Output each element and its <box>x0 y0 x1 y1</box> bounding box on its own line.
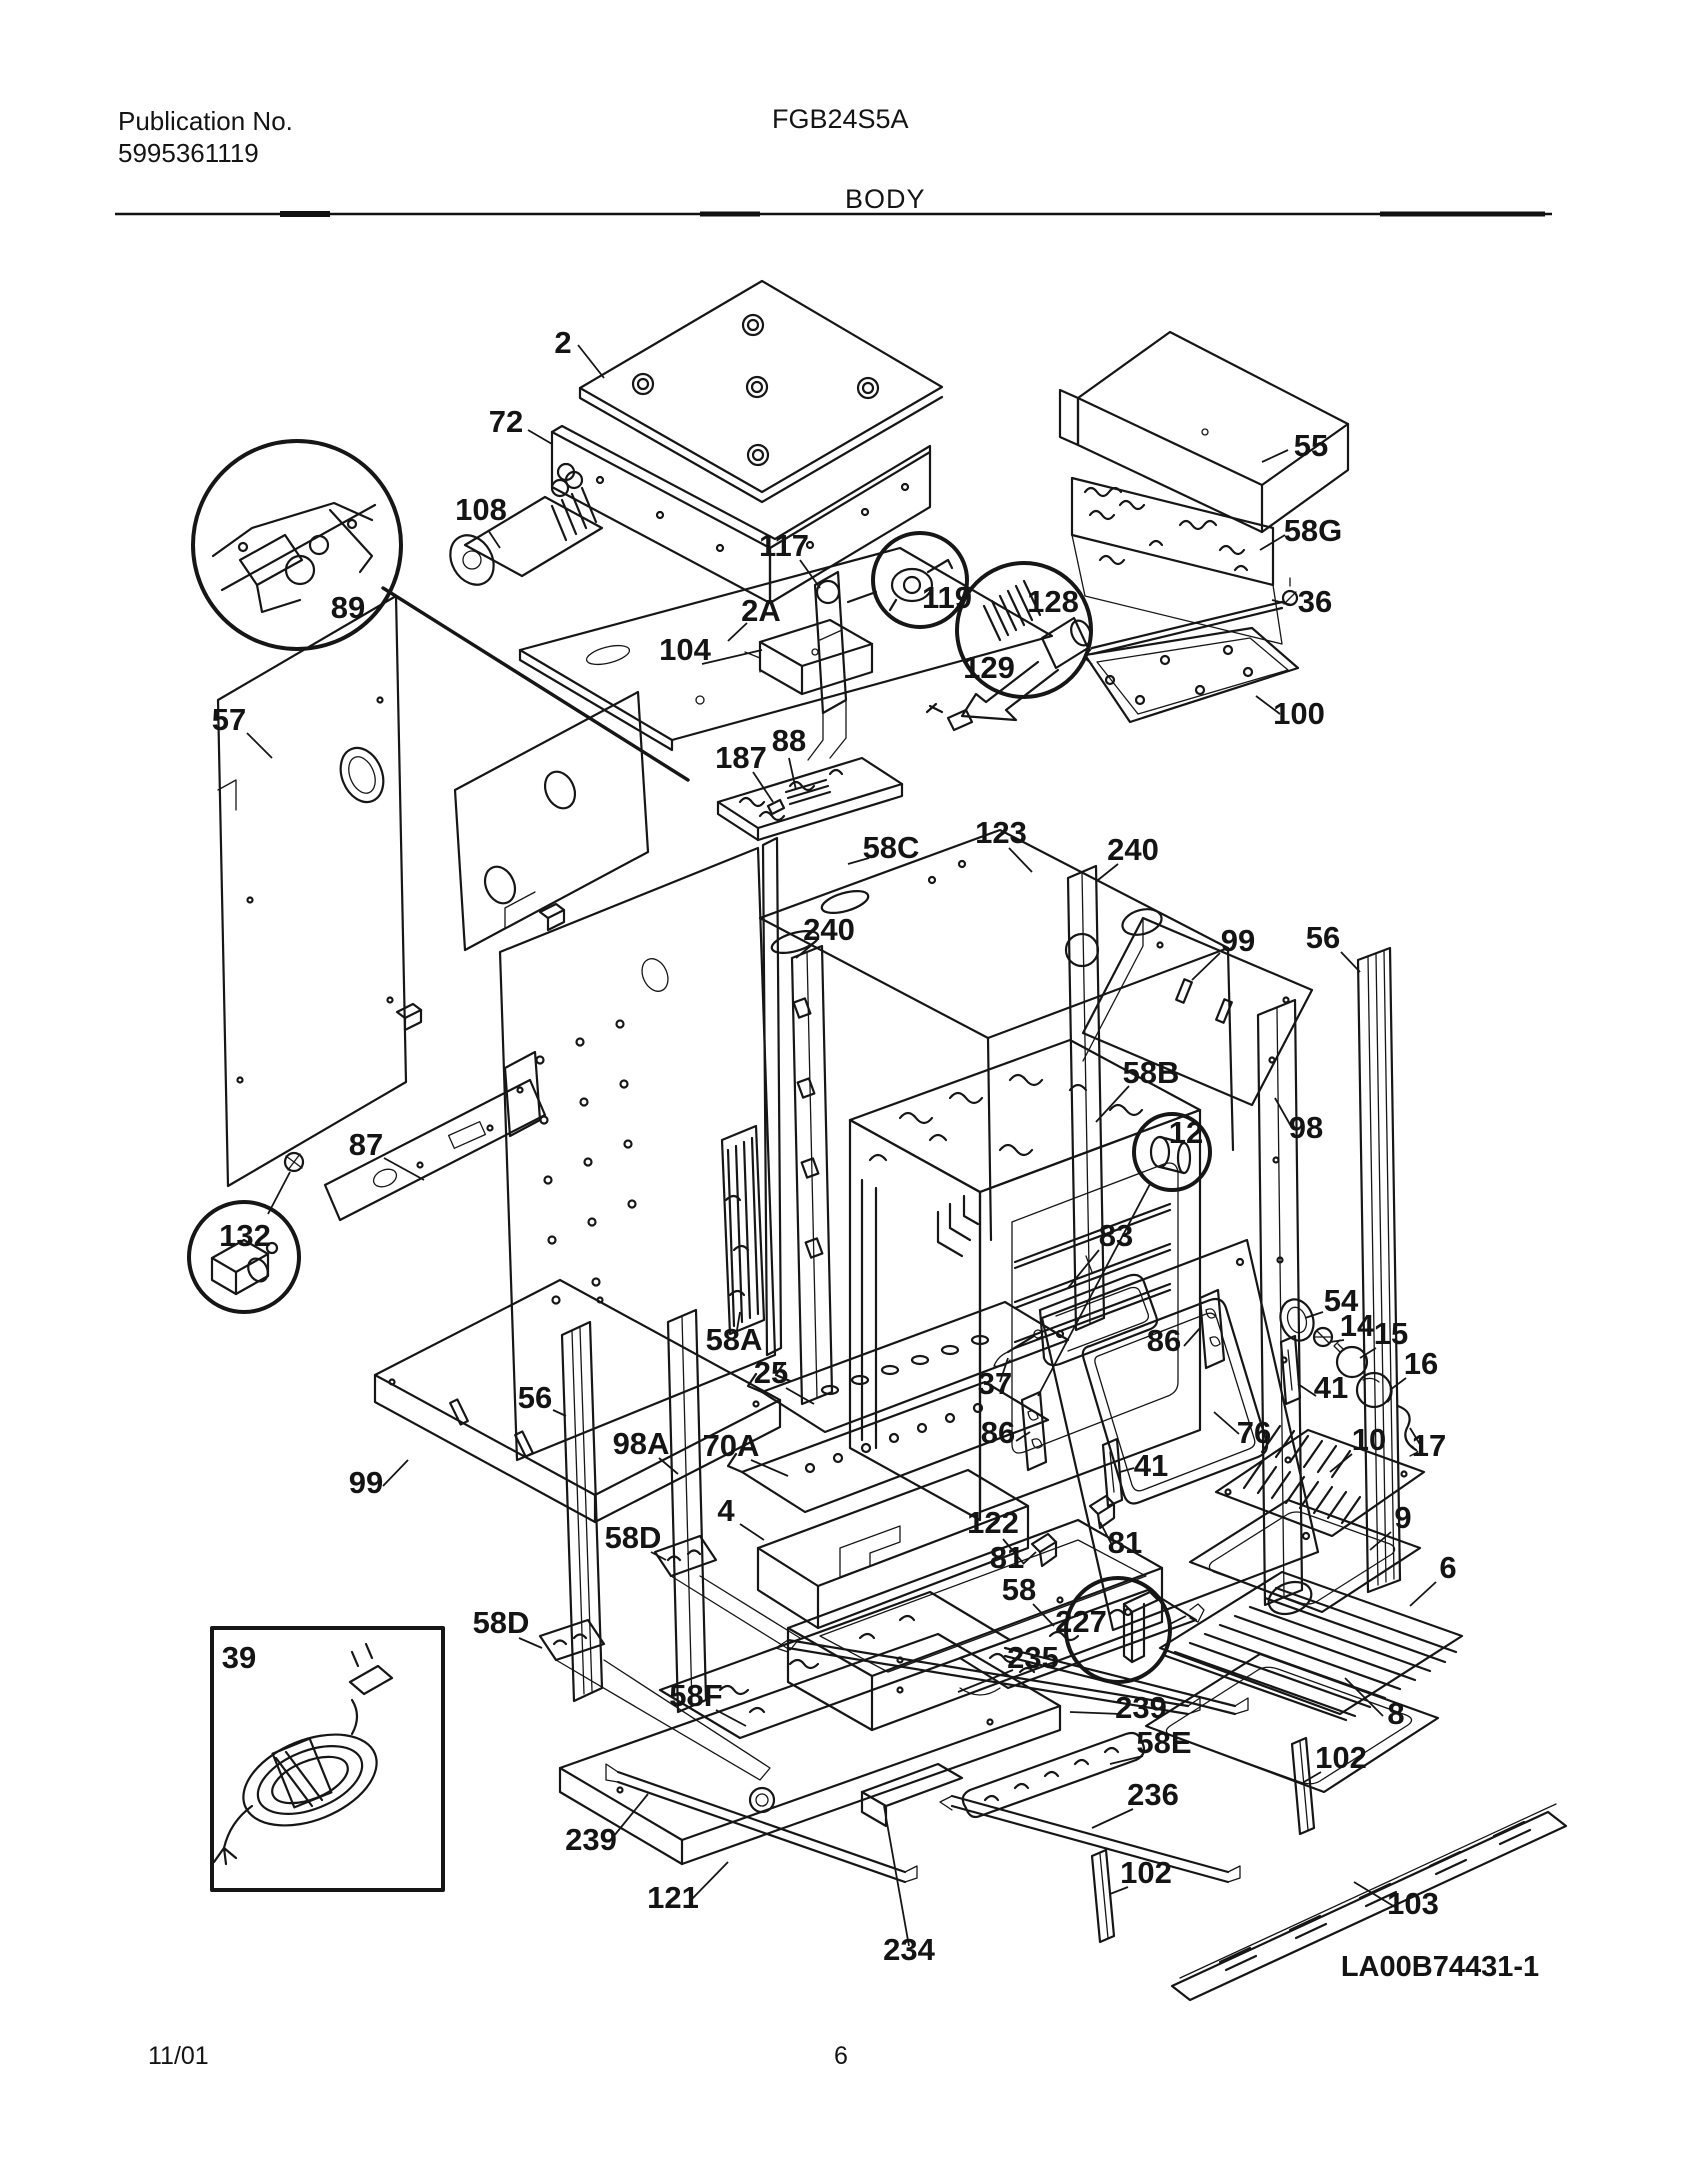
part-236-front-rail <box>940 1796 1240 1882</box>
part-label-227: 227 <box>1055 1604 1107 1639</box>
catalog-page: Publication No. 5995361119 FGB24S5A BODY… <box>0 0 1700 2178</box>
part-label-123: 123 <box>975 815 1027 850</box>
part-117-bracket <box>808 572 846 760</box>
leader-line-104 <box>702 650 762 664</box>
leader-line-123 <box>1009 848 1032 872</box>
part-132-bolt <box>285 1153 303 1171</box>
part-label-2: 2 <box>554 325 571 360</box>
part-14-lamp-nut <box>1314 1328 1332 1346</box>
leader-line-76 <box>1214 1412 1239 1434</box>
part-label-99: 99 <box>349 1465 383 1500</box>
part-label-234: 234 <box>883 1932 935 1967</box>
part-label-58E: 58E <box>1136 1725 1191 1760</box>
part-37-oven-sensor <box>994 1330 1042 1366</box>
part-label-108: 108 <box>455 492 507 527</box>
leader-line-86 <box>1184 1328 1200 1346</box>
part-58E-insulation-strip <box>963 1733 1144 1817</box>
part-label-41: 41 <box>1134 1448 1168 1483</box>
part-label-2A: 2A <box>741 593 781 628</box>
part-label-58D: 58D <box>605 1520 662 1555</box>
part-label-56: 56 <box>518 1380 552 1415</box>
part-240-channel-left <box>792 946 832 1404</box>
part-41-strap-right <box>1281 1336 1300 1404</box>
part-label-9: 9 <box>1394 1500 1411 1535</box>
part-label-236: 236 <box>1127 1777 1179 1812</box>
leader-line-10 <box>1330 1454 1352 1472</box>
part-2A-shelf-panel <box>520 548 1052 750</box>
part-label-87: 87 <box>349 1127 383 1162</box>
part-label-99: 99 <box>1221 923 1255 958</box>
part-80-clip-lower <box>397 1004 421 1030</box>
part-label-103: 103 <box>1387 1886 1439 1921</box>
part-label-240: 240 <box>1107 832 1159 867</box>
leader-line-57 <box>247 733 272 758</box>
part-label-187: 187 <box>715 740 767 775</box>
part-label-86: 86 <box>1147 1323 1181 1358</box>
part-33-panel <box>455 692 648 950</box>
part-56-trim-right <box>1358 948 1400 1592</box>
part-label-37: 37 <box>978 1366 1012 1401</box>
part-108-latch-motor <box>442 464 602 593</box>
part-label-89: 89 <box>331 590 365 625</box>
part-label-55: 55 <box>1294 428 1328 463</box>
part-98A-channel <box>668 1310 706 1712</box>
leader-line-12 <box>1038 1184 1150 1396</box>
part-label-8: 8 <box>1387 1696 1404 1731</box>
part-label-25: 25 <box>754 1355 788 1390</box>
part-label-119: 119 <box>922 580 972 615</box>
door-lock-callout-89 <box>193 441 688 780</box>
part-label-10: 10 <box>1352 1422 1386 1457</box>
part-label-58A: 58A <box>706 1322 763 1357</box>
part-label-17: 17 <box>1412 1428 1446 1463</box>
part-58G-insulation <box>1072 478 1282 644</box>
part-label-129: 129 <box>963 650 1015 685</box>
part-102-spacer-right <box>1292 1738 1314 1834</box>
part-97-wrapper-side-panel <box>500 848 775 1460</box>
part-58A-insulation-strip <box>722 1126 764 1334</box>
part-76-door-liner <box>1042 1240 1318 1630</box>
part-label-100: 100 <box>1273 696 1325 731</box>
leader-line-86 <box>1016 1432 1030 1441</box>
leader-line-132 <box>268 1172 290 1214</box>
part-86-hinge-left <box>1022 1392 1046 1470</box>
part-label-70A: 70A <box>703 1428 760 1463</box>
part-label-76: 76 <box>1237 1415 1271 1450</box>
part-label-58C: 58C <box>863 830 920 865</box>
part-label-16: 16 <box>1404 1346 1438 1381</box>
part-81-clip-right <box>1090 1496 1114 1528</box>
part-label-81: 81 <box>990 1540 1024 1575</box>
part-label-88: 88 <box>772 723 806 758</box>
part-label-240: 240 <box>803 912 855 947</box>
leader-line-6 <box>1410 1582 1436 1606</box>
part-label-58B: 58B <box>1123 1055 1180 1090</box>
part-label-41: 41 <box>1314 1370 1348 1405</box>
part-label-98A: 98A <box>613 1426 670 1461</box>
part-102-spacer-bottom <box>1092 1850 1114 1942</box>
part-label-122: 122 <box>967 1505 1019 1540</box>
leader-line-4 <box>740 1524 764 1540</box>
part-54-lamp-ring <box>1275 1295 1318 1345</box>
part-label-6: 6 <box>1439 1550 1456 1585</box>
part-label-39: 39 <box>222 1640 256 1675</box>
leader-line-2 <box>578 345 604 378</box>
part-label-102: 102 <box>1315 1740 1367 1775</box>
part-label-239: 239 <box>565 1822 617 1857</box>
part-label-57: 57 <box>212 702 246 737</box>
part-25-baffle <box>748 1302 1068 1432</box>
part-label-102: 102 <box>1120 1855 1172 1890</box>
part-label-58D: 58D <box>473 1605 530 1640</box>
leader-line-55 <box>1262 450 1288 462</box>
part-label-36: 36 <box>1298 584 1332 619</box>
part-label-14: 14 <box>1340 1308 1375 1343</box>
part-label-104: 104 <box>659 632 711 667</box>
leader-line-227 <box>1170 1616 1186 1624</box>
part-label-117: 117 <box>759 528 809 563</box>
part-label-239: 239 <box>1115 1690 1167 1725</box>
leader-line-25 <box>786 1388 814 1404</box>
part-label-132: 132 <box>219 1218 271 1253</box>
part-label-83: 83 <box>1099 1218 1133 1253</box>
leader-line-108 <box>488 530 500 548</box>
part-label-4: 4 <box>717 1493 735 1528</box>
part-label-128: 128 <box>1027 584 1079 619</box>
part-label-56: 56 <box>1306 920 1340 955</box>
exploded-parts-diagram: 272108891171191281295558G36100572A104881… <box>0 0 1700 2178</box>
part-104-bracket-box <box>745 620 872 694</box>
part-56-trim-left <box>562 1322 602 1701</box>
part-label-81: 81 <box>1108 1525 1142 1560</box>
part-label-58G: 58G <box>1284 513 1343 548</box>
leader-line-72 <box>528 430 552 444</box>
part-label-86: 86 <box>981 1415 1015 1450</box>
part-label-12: 12 <box>1169 1115 1203 1150</box>
part-123-wrapper-top <box>760 830 1233 1240</box>
leader-line-99 <box>383 1460 408 1486</box>
leader-line-54 <box>1305 1312 1323 1318</box>
part-label-58F: 58F <box>669 1678 722 1713</box>
part-label-58: 58 <box>1002 1572 1036 1607</box>
part-label-121: 121 <box>647 1880 699 1915</box>
part-2-top-panel <box>580 281 942 502</box>
leader-line-239 <box>1070 1712 1121 1714</box>
leader-line-81 <box>1023 1552 1036 1564</box>
part-57-side-panel <box>218 596 406 1186</box>
part-label-72: 72 <box>489 404 523 439</box>
part-label-98: 98 <box>1289 1110 1323 1145</box>
part-58F-insulation-sheet <box>660 1592 1010 1738</box>
drawing-number: LA00B74431-1 <box>1341 1951 1539 1983</box>
part-label-235: 235 <box>1007 1640 1059 1675</box>
